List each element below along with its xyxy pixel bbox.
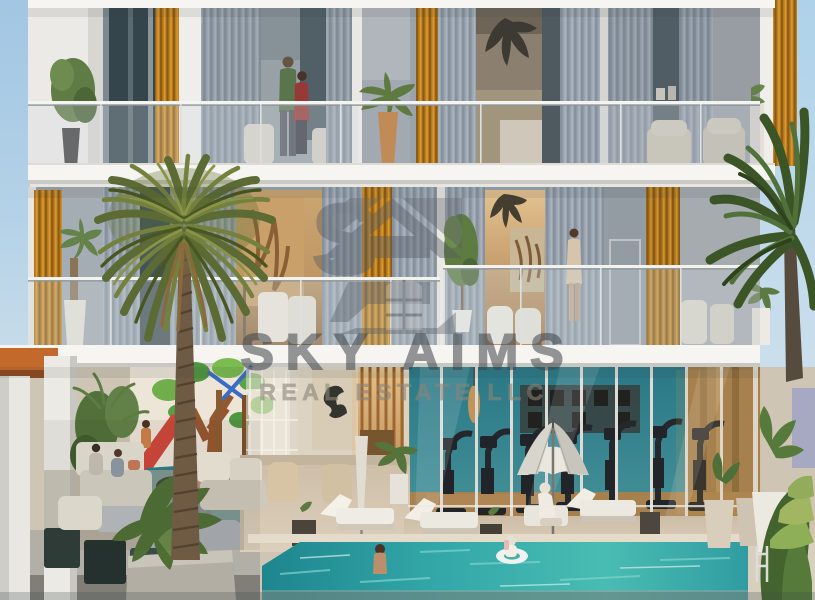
svg-text:SKY AIMS: SKY AIMS (241, 324, 576, 380)
svg-text:REAL ESTATE LLC: REAL ESTATE LLC (259, 379, 549, 405)
